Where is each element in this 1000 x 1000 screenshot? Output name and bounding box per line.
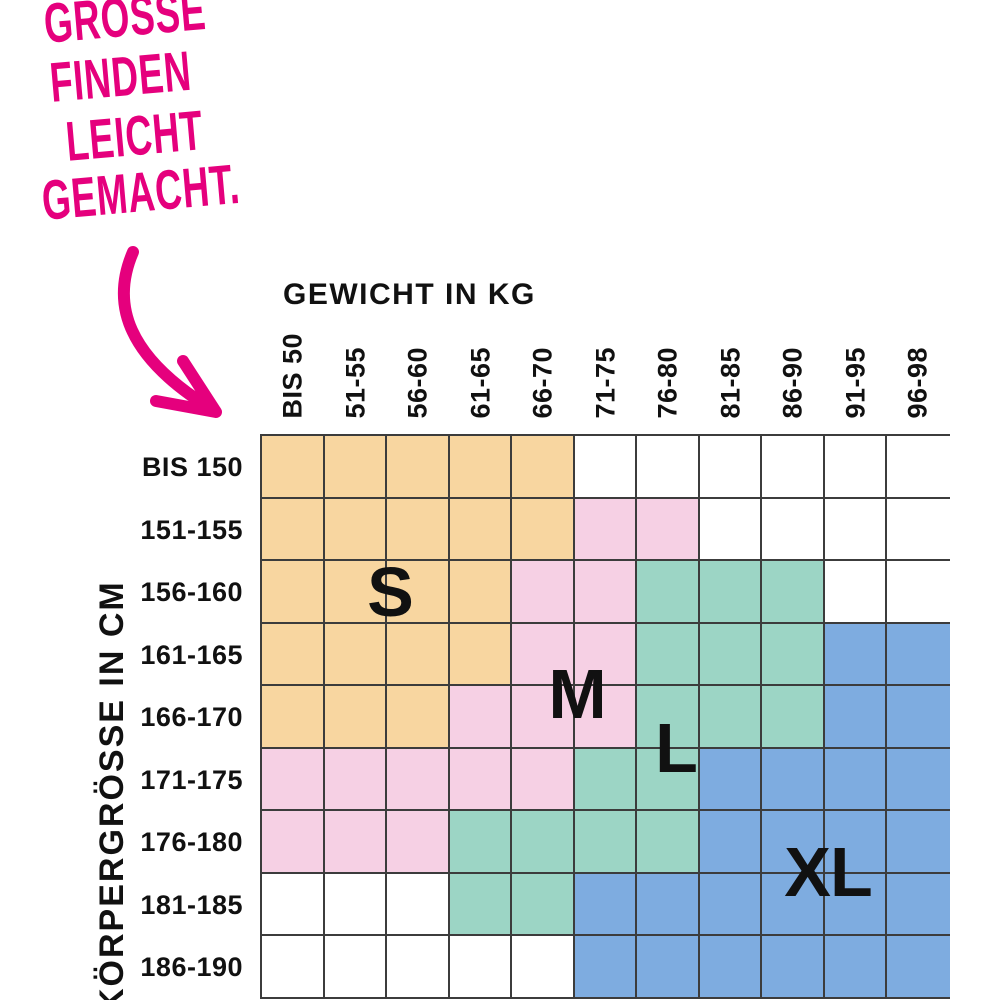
grid-cell [637, 436, 700, 499]
y-axis-tick-label: 156-160 [100, 579, 243, 606]
grid-cell [825, 561, 888, 624]
y-axis-tick-label: 181-185 [100, 892, 243, 919]
grid-cell [450, 561, 513, 624]
grid-cell [575, 811, 638, 874]
grid-cell [637, 561, 700, 624]
x-axis-tick-label: 81-85 [717, 309, 744, 419]
grid-cell [825, 436, 888, 499]
grid-cell [325, 624, 388, 687]
headline: GRÖSSE FINDEN LEICHT GEMACHT. [38, 0, 342, 230]
grid-cell [762, 936, 825, 999]
grid-cell [325, 436, 388, 499]
grid-cell [762, 499, 825, 562]
y-axis-tick-label: 151-155 [100, 517, 243, 544]
x-axis-tick-label: 86-90 [780, 309, 807, 419]
x-axis-tick-label: 61-65 [467, 309, 494, 419]
grid-cell [512, 936, 575, 999]
grid-cell [387, 874, 450, 937]
x-axis-tick-label: 66-70 [530, 309, 557, 419]
grid-cell [450, 811, 513, 874]
grid-cell [887, 811, 950, 874]
grid-cell [887, 936, 950, 999]
grid-cell [637, 624, 700, 687]
grid-cell [762, 749, 825, 812]
grid-cell [262, 686, 325, 749]
grid-cell [825, 749, 888, 812]
grid-cell [575, 936, 638, 999]
grid-cell [700, 499, 763, 562]
grid-cell [700, 749, 763, 812]
grid-cell [325, 749, 388, 812]
grid-cell [450, 436, 513, 499]
grid-cell [512, 499, 575, 562]
grid-cell [825, 686, 888, 749]
x-axis-tick-label: 51-55 [342, 309, 369, 419]
grid-cell [825, 499, 888, 562]
grid-cell [325, 686, 388, 749]
y-axis-tick-label: 176-180 [100, 829, 243, 856]
x-axis-tick-label: 56-60 [405, 309, 432, 419]
grid-cell [387, 811, 450, 874]
size-label-l: L [655, 708, 697, 788]
x-axis-tick-label: 71-75 [592, 309, 619, 419]
grid-cell [325, 874, 388, 937]
grid-cell [637, 811, 700, 874]
grid-cell [887, 749, 950, 812]
y-axis-tick-label: 171-175 [100, 767, 243, 794]
grid-cell [325, 936, 388, 999]
grid-cell [575, 561, 638, 624]
grid-cell [387, 436, 450, 499]
grid-cell [700, 686, 763, 749]
grid-cell [512, 561, 575, 624]
grid-cell [387, 749, 450, 812]
grid-cell [450, 874, 513, 937]
grid-cell [512, 749, 575, 812]
grid-cell [450, 749, 513, 812]
grid-cell [512, 436, 575, 499]
y-axis-tick-label: 161-165 [100, 642, 243, 669]
x-axis-tick-label: 96-98 [905, 309, 932, 419]
grid-cell [887, 499, 950, 562]
grid-cell [262, 499, 325, 562]
grid-cell [450, 499, 513, 562]
grid-cell [262, 561, 325, 624]
grid-cell [762, 624, 825, 687]
grid-cell [262, 436, 325, 499]
grid-cell [325, 811, 388, 874]
size-label-m: M [548, 654, 605, 734]
grid-cell [762, 436, 825, 499]
grid-cell [262, 936, 325, 999]
grid-cell [700, 561, 763, 624]
y-axis-tick-label: 186-190 [100, 954, 243, 981]
grid-cell [387, 936, 450, 999]
grid-cell [887, 436, 950, 499]
y-axis-title: KÖRPERGRÖSSE IN CM [95, 633, 129, 1000]
grid-cell [575, 499, 638, 562]
grid-cell [450, 624, 513, 687]
grid-cell [887, 561, 950, 624]
grid-cell [575, 874, 638, 937]
grid-cell [700, 936, 763, 999]
size-label-xl: XL [784, 832, 871, 912]
grid-cell [575, 436, 638, 499]
grid-cell [262, 749, 325, 812]
grid-cell [575, 749, 638, 812]
grid-cell [637, 499, 700, 562]
grid-cell [700, 811, 763, 874]
size-label-s: S [367, 552, 413, 632]
grid-cell [700, 624, 763, 687]
grid-cell [825, 624, 888, 687]
grid-cell [762, 686, 825, 749]
grid-cell [387, 686, 450, 749]
grid-cell [512, 811, 575, 874]
grid-cell [512, 874, 575, 937]
grid-cell [262, 811, 325, 874]
size-chart-infographic: GRÖSSE FINDEN LEICHT GEMACHT. GEWICHT IN… [0, 0, 1000, 1000]
grid-cell [387, 624, 450, 687]
grid-cell [637, 874, 700, 937]
x-axis-tick-label: 76-80 [655, 309, 682, 419]
grid-cell [887, 686, 950, 749]
grid-cell [450, 936, 513, 999]
x-axis-tick-label: BIS 50 [280, 309, 307, 419]
grid-cell [887, 874, 950, 937]
grid-cell [700, 874, 763, 937]
grid-cell [762, 561, 825, 624]
y-axis-tick-label: BIS 150 [100, 454, 243, 481]
grid-cell [825, 936, 888, 999]
grid-cell [262, 874, 325, 937]
grid-cell [637, 936, 700, 999]
x-axis-title: GEWICHT IN KG [283, 278, 536, 312]
y-axis-tick-label: 166-170 [100, 704, 243, 731]
x-axis-tick-label: 91-95 [842, 309, 869, 419]
grid-cell [262, 624, 325, 687]
grid-cell [450, 686, 513, 749]
grid-cell [887, 624, 950, 687]
curved-arrow-icon [95, 235, 255, 425]
grid-cell [700, 436, 763, 499]
